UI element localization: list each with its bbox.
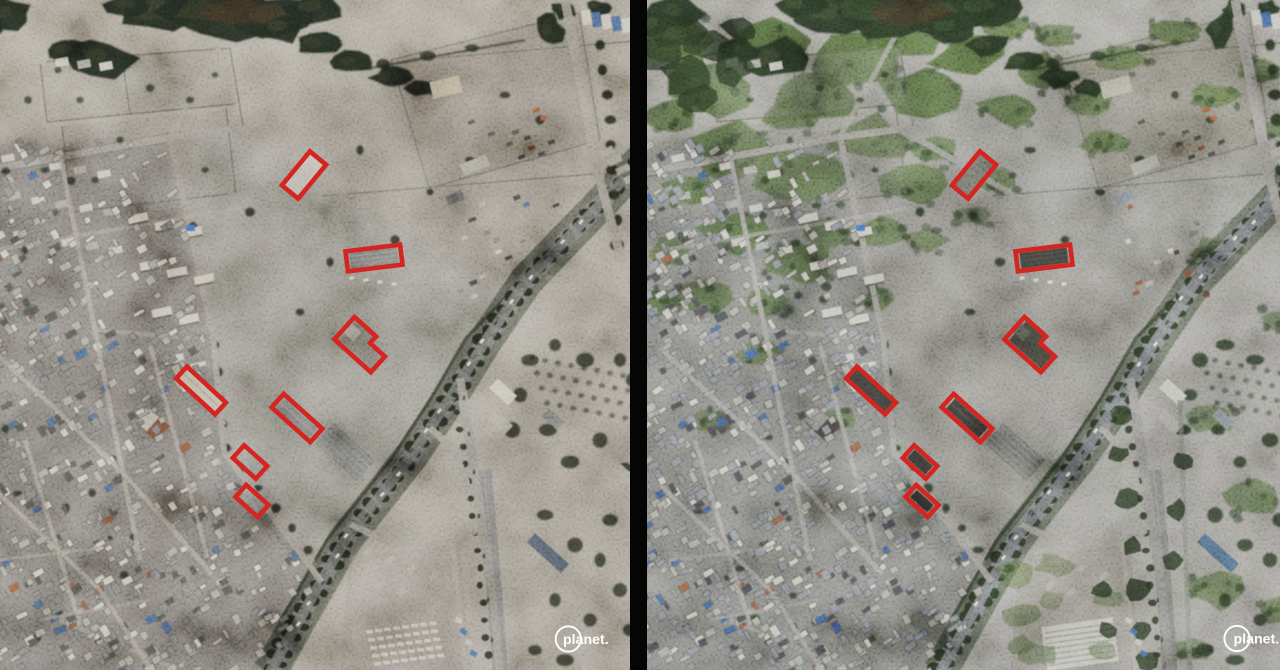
svg-text:planet.: planet. <box>1234 632 1280 648</box>
svg-text:planet.: planet. <box>563 632 609 648</box>
